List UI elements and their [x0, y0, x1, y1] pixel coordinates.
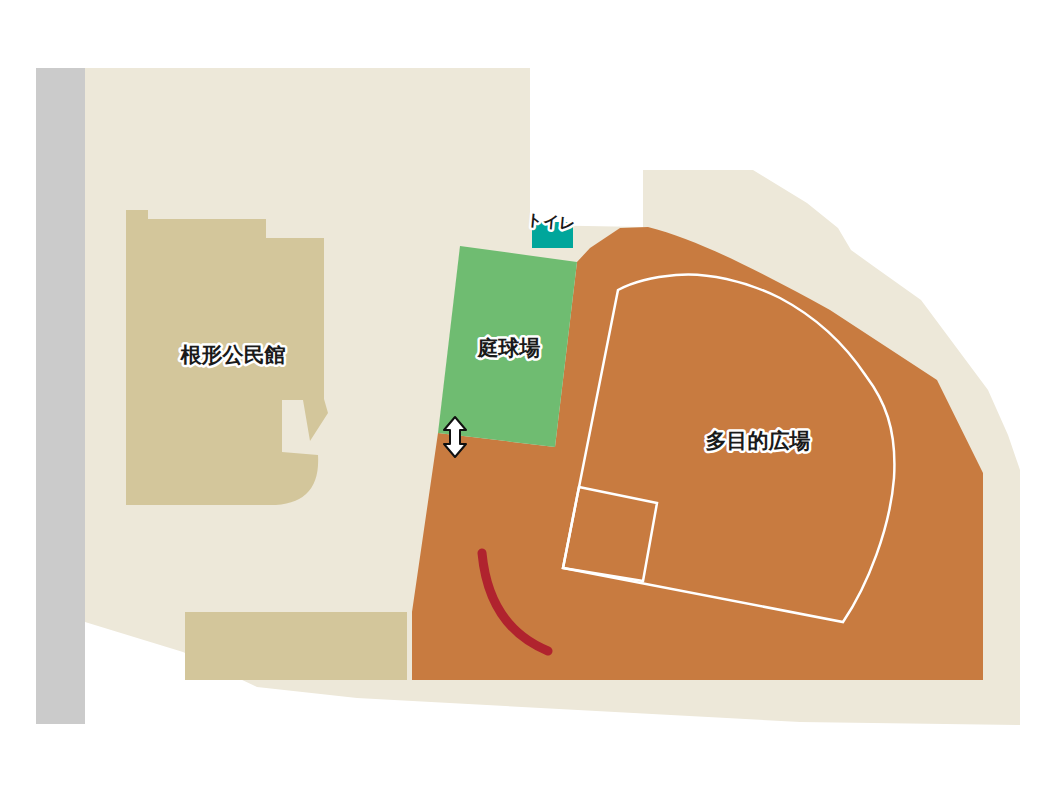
tennis-court-label: 庭球場	[477, 336, 541, 360]
annex-block	[185, 612, 407, 680]
multipurpose-plaza-label: 多目的広場	[706, 429, 811, 453]
community-center-label: 根形公民館	[180, 343, 286, 367]
road-strip	[36, 68, 85, 724]
facility-map-canvas: 根形公民館 庭球場 多目的広場 トイレ	[0, 0, 1060, 786]
facility-map: 根形公民館 庭球場 多目的広場 トイレ	[0, 0, 1060, 786]
